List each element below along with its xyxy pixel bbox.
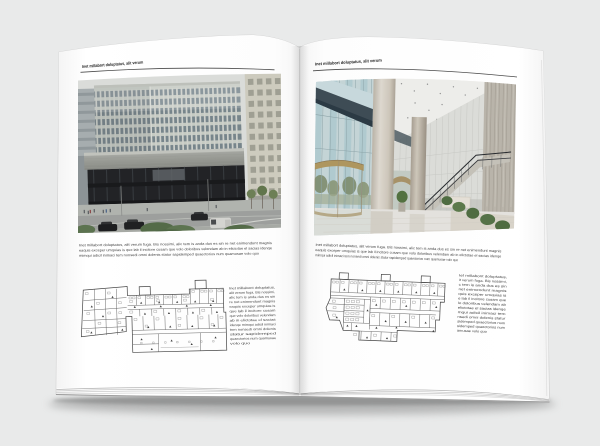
svg-text:volo quo: volo quo bbox=[230, 341, 250, 345]
